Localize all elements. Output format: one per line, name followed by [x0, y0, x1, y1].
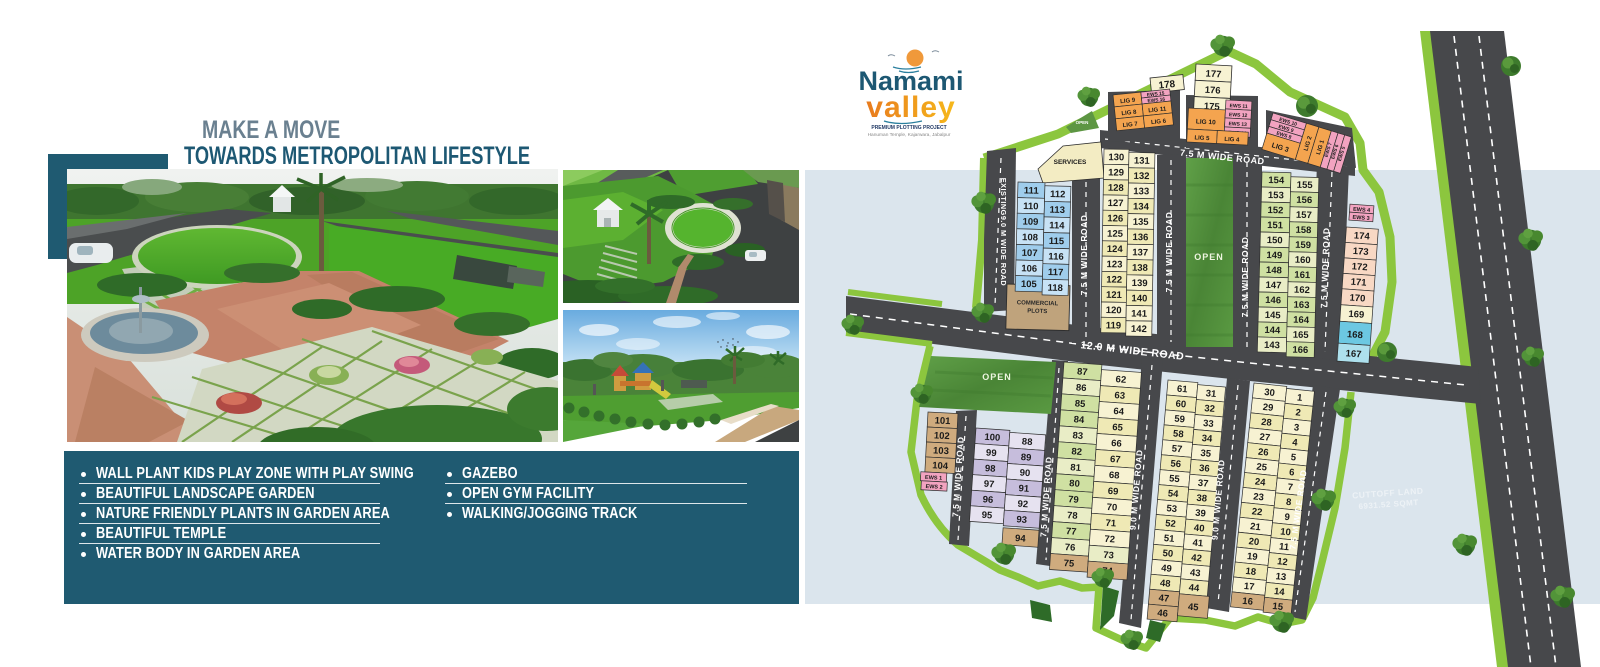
svg-text:33: 33	[1203, 418, 1214, 430]
svg-text:126: 126	[1107, 213, 1123, 224]
svg-text:167: 167	[1345, 348, 1362, 360]
svg-text:49: 49	[1161, 563, 1172, 575]
svg-text:36: 36	[1199, 463, 1210, 475]
svg-text:158: 158	[1295, 225, 1311, 236]
svg-text:92: 92	[1017, 499, 1028, 511]
svg-text:PREMIUM PLOTTING PROJECT: PREMIUM PLOTTING PROJECT	[871, 125, 946, 131]
svg-text:106: 106	[1021, 263, 1037, 274]
svg-text:EWS 2: EWS 2	[925, 484, 942, 491]
svg-text:30: 30	[1264, 387, 1276, 399]
svg-text:LIG 4: LIG 4	[1224, 137, 1240, 144]
svg-text:172: 172	[1351, 261, 1368, 273]
svg-text:14: 14	[1273, 586, 1285, 598]
svg-text:110: 110	[1023, 201, 1039, 212]
svg-text:71: 71	[1105, 518, 1117, 530]
svg-text:89: 89	[1020, 452, 1031, 464]
svg-text:51: 51	[1163, 533, 1175, 545]
svg-text:48: 48	[1159, 578, 1170, 590]
svg-text:24: 24	[1254, 476, 1266, 488]
svg-text:COMMERCIAL: COMMERCIAL	[1017, 300, 1059, 307]
svg-text:47: 47	[1158, 593, 1169, 605]
svg-text:93: 93	[1016, 514, 1027, 526]
svg-text:82: 82	[1071, 446, 1082, 458]
svg-text:119: 119	[1106, 320, 1122, 331]
svg-text:79: 79	[1068, 494, 1079, 506]
svg-text:104: 104	[932, 460, 949, 472]
svg-text:127: 127	[1108, 198, 1124, 209]
svg-text:43: 43	[1189, 567, 1200, 579]
svg-text:65: 65	[1112, 422, 1124, 434]
svg-text:88: 88	[1021, 436, 1032, 448]
svg-text:156: 156	[1296, 195, 1312, 206]
svg-text:98: 98	[985, 463, 996, 475]
svg-text:50: 50	[1162, 548, 1173, 560]
svg-text:38: 38	[1196, 493, 1207, 505]
svg-text:125: 125	[1107, 229, 1124, 240]
svg-text:114: 114	[1049, 220, 1065, 231]
svg-text:122: 122	[1106, 274, 1122, 285]
svg-text:7.5 M WIDE ROAD: 7.5 M WIDE ROAD	[1164, 212, 1174, 293]
svg-text:133: 133	[1133, 186, 1149, 197]
svg-text:40: 40	[1193, 523, 1204, 535]
svg-text:146: 146	[1265, 295, 1281, 306]
svg-text:45: 45	[1188, 602, 1200, 614]
svg-text:177: 177	[1205, 69, 1221, 81]
svg-text:58: 58	[1173, 428, 1184, 440]
svg-text:94: 94	[1015, 533, 1027, 545]
svg-text:41: 41	[1192, 538, 1204, 550]
svg-text:39: 39	[1195, 508, 1206, 520]
svg-text:84: 84	[1073, 414, 1085, 426]
svg-text:147: 147	[1265, 280, 1281, 291]
svg-text:6931.52 SQMT: 6931.52 SQMT	[1358, 498, 1419, 511]
svg-text:141: 141	[1131, 309, 1148, 320]
svg-text:83: 83	[1072, 430, 1083, 442]
svg-text:162: 162	[1294, 285, 1310, 296]
svg-text:85: 85	[1074, 398, 1086, 410]
svg-text:121: 121	[1106, 290, 1123, 301]
svg-text:25: 25	[1256, 462, 1268, 474]
svg-text:66: 66	[1111, 438, 1122, 450]
svg-text:120: 120	[1106, 305, 1122, 316]
svg-text:68: 68	[1109, 470, 1120, 482]
svg-text:130: 130	[1108, 152, 1124, 163]
svg-text:100: 100	[984, 432, 1001, 444]
svg-text:153: 153	[1268, 190, 1284, 201]
svg-text:56: 56	[1170, 458, 1181, 470]
svg-text:42: 42	[1191, 553, 1202, 565]
svg-text:99: 99	[986, 448, 997, 460]
svg-text:107: 107	[1022, 248, 1038, 259]
svg-text:115: 115	[1049, 236, 1065, 247]
svg-text:150: 150	[1267, 235, 1283, 246]
svg-text:57: 57	[1171, 443, 1182, 455]
svg-text:166: 166	[1292, 345, 1308, 356]
svg-text:23: 23	[1253, 491, 1265, 503]
svg-text:103: 103	[933, 445, 949, 457]
svg-text:174: 174	[1353, 230, 1370, 242]
svg-text:32: 32	[1204, 403, 1215, 415]
svg-text:18: 18	[1245, 566, 1257, 578]
svg-text:139: 139	[1132, 278, 1148, 289]
svg-text:52: 52	[1165, 518, 1176, 530]
svg-text:PLOTS: PLOTS	[1027, 309, 1047, 316]
svg-text:87: 87	[1077, 366, 1088, 378]
svg-text:117: 117	[1048, 267, 1064, 278]
svg-text:62: 62	[1115, 374, 1126, 386]
svg-text:169: 169	[1348, 309, 1365, 321]
svg-text:9: 9	[1284, 512, 1290, 523]
svg-text:149: 149	[1266, 250, 1282, 261]
svg-text:144: 144	[1264, 325, 1281, 336]
svg-text:28: 28	[1261, 417, 1273, 429]
svg-text:69: 69	[1107, 486, 1118, 498]
svg-text:OPEN: OPEN	[1194, 252, 1224, 262]
svg-text:53: 53	[1166, 503, 1177, 515]
svg-text:111: 111	[1024, 185, 1040, 196]
svg-text:81: 81	[1070, 462, 1082, 474]
svg-text:163: 163	[1293, 300, 1309, 311]
svg-text:EXISTING9.0 M WIDE ROAD: EXISTING9.0 M WIDE ROAD	[999, 178, 1008, 286]
svg-text:31: 31	[1205, 388, 1217, 400]
svg-text:17: 17	[1243, 581, 1255, 593]
svg-text:132: 132	[1134, 171, 1150, 182]
svg-text:76: 76	[1064, 542, 1075, 554]
svg-text:95: 95	[981, 510, 993, 522]
svg-text:59: 59	[1174, 414, 1185, 426]
svg-text:78: 78	[1067, 510, 1078, 522]
svg-text:20: 20	[1248, 536, 1260, 548]
svg-text:29: 29	[1262, 402, 1274, 414]
svg-text:60: 60	[1175, 399, 1186, 411]
svg-text:19: 19	[1246, 551, 1258, 563]
svg-text:165: 165	[1293, 330, 1310, 341]
svg-text:LIG 10: LIG 10	[1196, 118, 1217, 126]
svg-text:72: 72	[1104, 534, 1115, 546]
svg-text:OPEN: OPEN	[1076, 120, 1089, 125]
svg-text:6: 6	[1289, 467, 1295, 478]
svg-text:7.5 M WIDE ROAD: 7.5 M WIDE ROAD	[1079, 215, 1089, 296]
svg-text:35: 35	[1200, 448, 1212, 460]
svg-text:SERVICES: SERVICES	[1054, 159, 1087, 166]
svg-text:61: 61	[1176, 384, 1188, 396]
svg-text:46: 46	[1157, 608, 1168, 620]
svg-text:44: 44	[1188, 582, 1200, 594]
svg-text:176: 176	[1204, 85, 1220, 97]
svg-text:116: 116	[1048, 251, 1064, 262]
svg-text:63: 63	[1114, 390, 1125, 402]
svg-text:54: 54	[1167, 488, 1179, 500]
svg-text:102: 102	[934, 430, 950, 442]
svg-text:75: 75	[1063, 558, 1075, 570]
svg-text:148: 148	[1266, 265, 1282, 276]
svg-text:112: 112	[1050, 189, 1066, 200]
svg-text:168: 168	[1347, 329, 1364, 341]
svg-text:142: 142	[1131, 324, 1147, 335]
svg-text:12: 12	[1277, 556, 1289, 568]
svg-text:37: 37	[1197, 478, 1208, 490]
svg-text:134: 134	[1133, 201, 1150, 212]
svg-text:101: 101	[934, 415, 951, 427]
svg-text:90: 90	[1019, 468, 1030, 480]
svg-text:124: 124	[1107, 244, 1124, 255]
svg-text:2: 2	[1295, 407, 1301, 418]
svg-text:86: 86	[1076, 382, 1087, 394]
svg-text:91: 91	[1018, 483, 1030, 495]
svg-text:151: 151	[1267, 220, 1284, 231]
svg-text:160: 160	[1295, 255, 1311, 266]
svg-text:108: 108	[1022, 232, 1038, 243]
svg-text:55: 55	[1169, 473, 1181, 485]
svg-text:64: 64	[1113, 406, 1125, 418]
svg-text:123: 123	[1106, 259, 1122, 270]
svg-text:173: 173	[1352, 246, 1369, 258]
svg-text:13: 13	[1275, 571, 1287, 583]
svg-text:109: 109	[1022, 217, 1038, 228]
svg-text:34: 34	[1201, 433, 1213, 445]
svg-text:valley: valley	[866, 91, 955, 124]
svg-text:7: 7	[1287, 482, 1293, 493]
svg-text:16: 16	[1242, 596, 1254, 608]
svg-text:136: 136	[1132, 232, 1148, 243]
svg-text:22: 22	[1251, 506, 1263, 518]
svg-text:67: 67	[1110, 454, 1121, 466]
svg-text:3: 3	[1293, 422, 1299, 433]
svg-text:21: 21	[1250, 521, 1262, 533]
svg-text:OPEN: OPEN	[982, 372, 1012, 382]
svg-text:Hanuman Temple, Kajarwara, Jab: Hanuman Temple, Kajarwara, Jabalpur	[868, 132, 951, 138]
svg-text:157: 157	[1296, 210, 1312, 221]
svg-text:96: 96	[982, 494, 993, 506]
svg-text:26: 26	[1257, 447, 1269, 459]
svg-text:105: 105	[1021, 279, 1038, 290]
svg-text:140: 140	[1131, 293, 1147, 304]
svg-text:154: 154	[1268, 175, 1285, 186]
svg-text:145: 145	[1265, 310, 1282, 321]
svg-text:161: 161	[1294, 270, 1311, 281]
svg-text:118: 118	[1047, 283, 1063, 294]
svg-text:129: 129	[1108, 167, 1124, 178]
svg-text:8: 8	[1285, 497, 1291, 508]
svg-text:135: 135	[1133, 217, 1150, 228]
svg-text:73: 73	[1103, 550, 1114, 562]
svg-text:128: 128	[1108, 183, 1124, 194]
svg-text:113: 113	[1049, 205, 1065, 216]
svg-text:152: 152	[1267, 205, 1283, 216]
svg-text:EWS 3: EWS 3	[1352, 215, 1370, 222]
svg-text:LIG 5: LIG 5	[1194, 135, 1210, 142]
svg-text:80: 80	[1069, 478, 1080, 490]
svg-text:159: 159	[1295, 240, 1311, 251]
svg-text:171: 171	[1350, 277, 1367, 289]
svg-text:143: 143	[1264, 340, 1280, 351]
svg-text:138: 138	[1132, 263, 1148, 274]
svg-text:97: 97	[983, 479, 994, 491]
svg-text:131: 131	[1134, 156, 1151, 167]
svg-text:70: 70	[1106, 502, 1117, 514]
svg-text:77: 77	[1066, 526, 1077, 538]
svg-text:137: 137	[1132, 247, 1148, 258]
svg-text:170: 170	[1349, 293, 1366, 305]
svg-text:27: 27	[1259, 432, 1271, 444]
svg-text:164: 164	[1293, 315, 1310, 326]
svg-text:7.5 M WIDE ROAD: 7.5 M WIDE ROAD	[1240, 237, 1250, 318]
svg-text:155: 155	[1297, 180, 1314, 191]
